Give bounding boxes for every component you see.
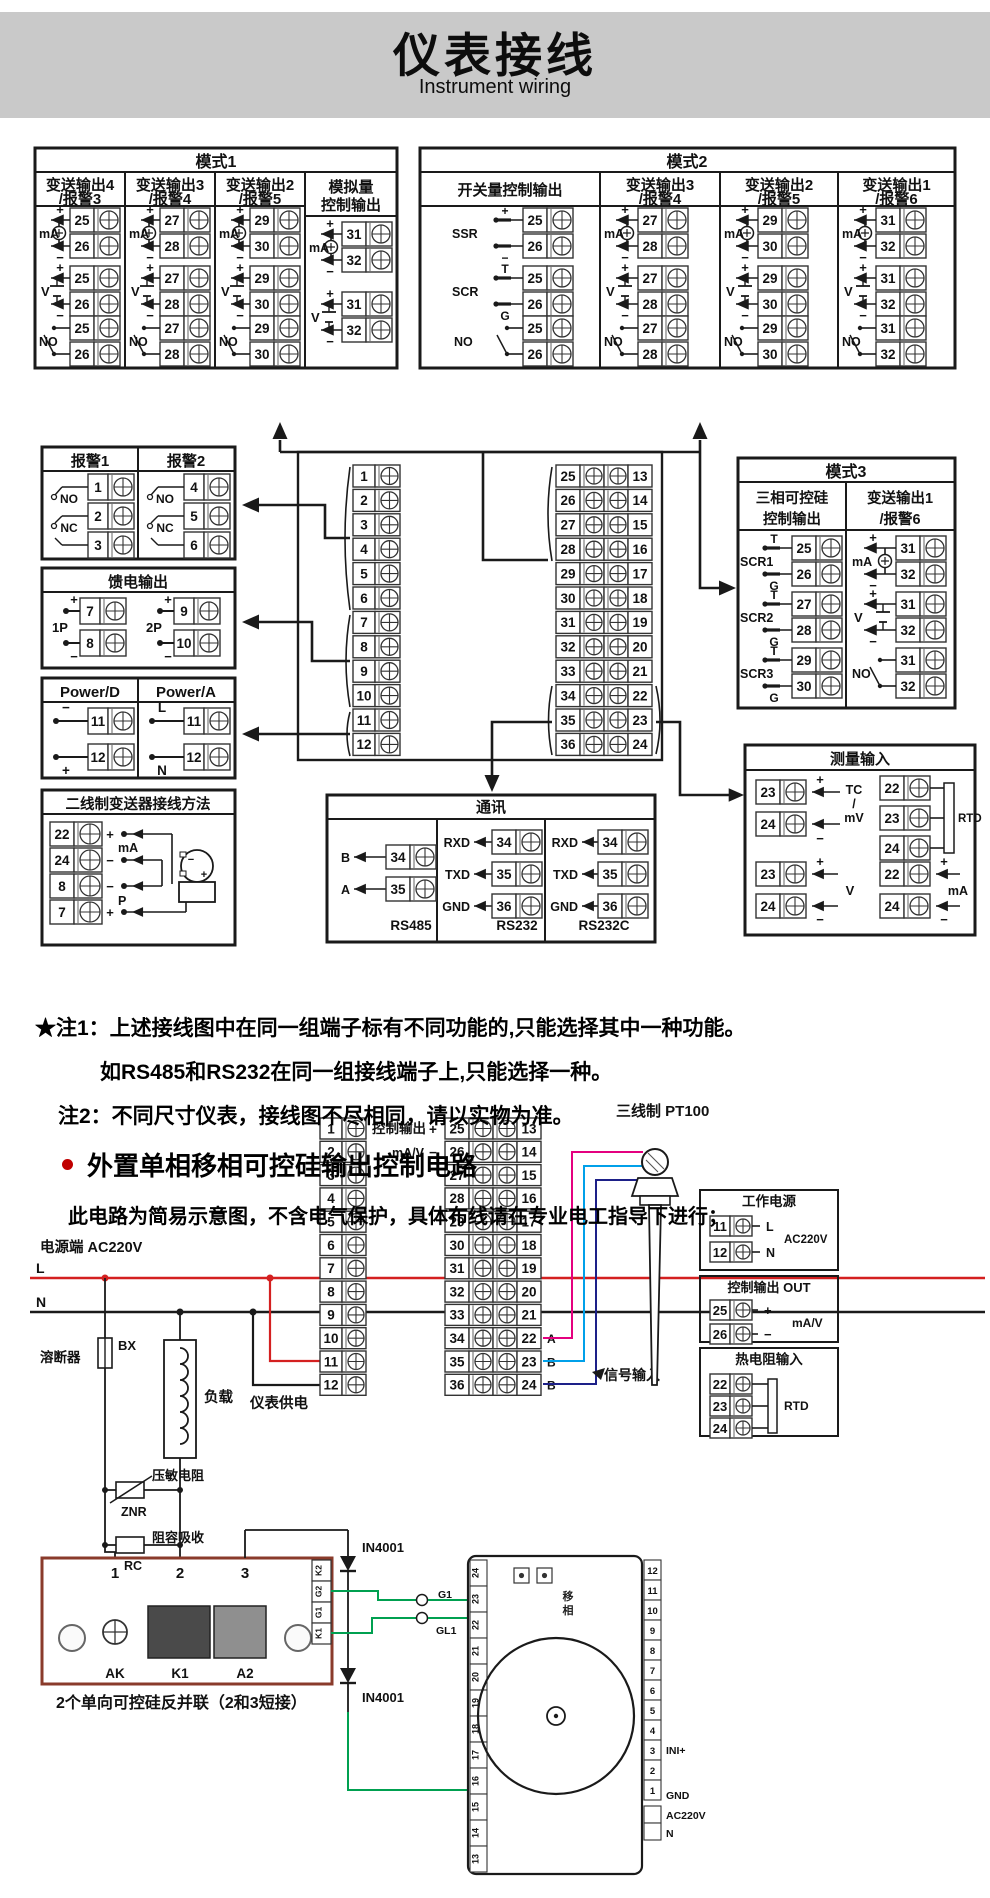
arrowhead-icon: [582, 837, 594, 848]
terminal-number: 7: [58, 905, 66, 920]
terminal-number: 33: [560, 664, 576, 679]
label: +: [56, 260, 64, 275]
label: Power/A: [156, 684, 216, 701]
arrowhead-icon: [693, 422, 708, 439]
label: /: [852, 797, 856, 811]
label: mA: [39, 227, 59, 241]
label: NO: [604, 335, 623, 349]
label: K1: [171, 1666, 189, 1681]
label: GL1: [436, 1625, 457, 1637]
page: 仪表接线 Instrument wiring 模式1变送输出4/报警32526+…: [0, 0, 990, 1898]
label: /报警3: [59, 190, 102, 208]
label: −: [621, 308, 629, 323]
terminal-number: 9: [180, 604, 188, 619]
wire: [656, 686, 660, 754]
terminal-number: 21: [521, 1308, 537, 1323]
label: K1: [314, 1628, 324, 1639]
terminal-number: 11: [357, 713, 372, 728]
tab: [180, 871, 186, 876]
label: A: [341, 883, 350, 897]
contact: [148, 524, 153, 529]
terminal-number: 18: [521, 1238, 537, 1253]
label: INI+: [666, 1745, 686, 1757]
label: P: [118, 894, 126, 908]
arrowhead-icon: [354, 884, 366, 895]
label: 16: [471, 1776, 481, 1786]
terminal-number: 6: [360, 591, 368, 606]
label: 三相可控硅: [756, 489, 829, 507]
terminal-number: 24: [54, 853, 70, 868]
label: 模式2: [667, 152, 708, 171]
label: 报警2: [167, 452, 205, 470]
label: B: [341, 851, 350, 865]
wire: [348, 1712, 470, 1790]
label: V: [854, 610, 863, 625]
terminal-number: 17: [632, 566, 647, 581]
label: RS232C: [578, 918, 629, 933]
bullet-icon: [62, 1159, 73, 1170]
label: 21: [471, 1646, 481, 1656]
label: SCR3: [740, 667, 773, 681]
terminal-number: 11: [91, 714, 106, 729]
label: T: [770, 644, 778, 658]
terminal-number: 31: [900, 597, 916, 612]
terminal-number: 26: [527, 239, 543, 254]
terminal-number: 15: [632, 518, 648, 533]
label: 20: [471, 1672, 481, 1682]
arrowhead-icon: [474, 901, 486, 912]
scr-body: [148, 1606, 210, 1658]
label: +: [741, 260, 749, 275]
label: 工作电源: [742, 1193, 796, 1209]
junction-dot: [620, 326, 624, 330]
terminal-number: 23: [884, 811, 900, 826]
junction-dot: [554, 1714, 558, 1718]
label: 1: [650, 1786, 656, 1797]
label: mA: [604, 227, 624, 241]
junction-dot: [519, 1573, 524, 1578]
terminal-number: 32: [900, 567, 915, 582]
label: N: [36, 1294, 46, 1310]
wire: [497, 335, 507, 354]
section-heading: 外置单相移相可控硅输出控制电路: [62, 1146, 477, 1183]
terminal-number: 26: [74, 239, 90, 254]
terminal-number: 14: [632, 493, 648, 508]
label: AC220V: [666, 1810, 706, 1822]
label: +: [859, 202, 867, 217]
label: −: [164, 649, 172, 664]
label: IN4001: [362, 1540, 404, 1555]
terminal-number: 30: [762, 347, 777, 362]
label: V: [311, 310, 320, 325]
terminal-number: 34: [449, 1331, 465, 1346]
terminal-number: 8: [360, 640, 368, 655]
label: SCR2: [740, 611, 773, 625]
terminal-number: 26: [560, 493, 576, 508]
feeder-lines: [242, 422, 744, 802]
terminal-number: 2: [360, 493, 368, 508]
terminal-number: 36: [602, 899, 618, 914]
terminal-number: 32: [900, 623, 915, 638]
terminal-number: 8: [58, 879, 66, 894]
power-box: Power/D1112−+Power/A1112LN: [42, 678, 235, 778]
arrowhead-icon: [729, 788, 744, 802]
note-2: 注2：不同尺寸仪表，接线图不尽相同，请以实物为准。: [58, 1100, 574, 1130]
terminal-number: 25: [527, 271, 543, 286]
label: mA: [309, 241, 329, 255]
gate-terminal: [417, 1595, 428, 1606]
label: V: [606, 284, 615, 299]
terminal-number: 7: [327, 1261, 335, 1276]
label: +: [326, 216, 334, 231]
terminal-number: 11: [324, 1354, 339, 1369]
label: V: [726, 284, 735, 299]
label: AK: [105, 1666, 125, 1681]
terminal-number: 22: [54, 827, 69, 842]
terminal-number: 12: [713, 1245, 727, 1260]
wire: [105, 1278, 115, 1558]
terminal-number: 29: [762, 213, 777, 228]
label: +: [621, 202, 629, 217]
arrowhead-icon: [936, 869, 948, 880]
wiring-diagram: 模式1变送输出4/报警32526+−mA2526+−V2526NO变送输出3/报…: [0, 0, 990, 1898]
label: 15: [471, 1802, 481, 1812]
terminal-number: 29: [254, 321, 269, 336]
label: 12: [647, 1566, 658, 1577]
terminal-number: 19: [632, 615, 647, 630]
load-box: [164, 1340, 196, 1458]
label: /报警6: [879, 510, 920, 528]
junction-dot: [762, 545, 767, 550]
label: L: [36, 1260, 45, 1276]
terminal-number: 28: [560, 542, 576, 557]
wire: [124, 902, 186, 912]
label: −: [741, 308, 749, 323]
label: 报警1: [71, 452, 109, 470]
terminal-number: 27: [164, 271, 179, 286]
label: −: [106, 879, 114, 894]
note-1b: 如RS485和RS232在同一组接线端子上,只能选择一种。: [100, 1056, 612, 1086]
terminal-number: 31: [880, 271, 896, 286]
label: GND: [550, 900, 578, 914]
terminal-number: 33: [449, 1308, 465, 1323]
label: 9: [650, 1626, 655, 1637]
arrowhead-icon: [812, 787, 824, 798]
label: /报警5: [758, 190, 801, 208]
terminal-number: 23: [713, 1399, 727, 1414]
label: 电源端 AC220V: [40, 1238, 143, 1256]
label: mA: [118, 841, 138, 855]
junction-dot: [878, 658, 882, 662]
label: −: [70, 649, 78, 664]
label: +: [106, 827, 114, 842]
label: +: [62, 763, 70, 778]
label: A2: [236, 1666, 253, 1681]
terminal-number: 24: [632, 737, 648, 752]
terminal-number: 25: [527, 321, 543, 336]
terminal-number: 35: [390, 882, 406, 897]
label: RXD: [552, 836, 578, 850]
terminal-number: 8: [327, 1284, 335, 1299]
label: T: [501, 262, 509, 276]
label: RS232: [496, 918, 537, 933]
contact: [148, 495, 153, 500]
label: NO: [724, 335, 743, 349]
terminal-number: 10: [176, 636, 191, 651]
terminal-number: 28: [642, 347, 658, 362]
label: V: [131, 284, 140, 299]
label: +: [501, 204, 508, 218]
label: K2: [314, 1565, 324, 1576]
terminal-number: 34: [390, 850, 406, 865]
terminal-number: 23: [632, 713, 648, 728]
label: +: [70, 592, 78, 607]
arrowhead-icon: [812, 819, 824, 830]
label: 2: [176, 1565, 184, 1582]
diode-icon: [340, 1668, 356, 1683]
label: 24: [471, 1568, 481, 1578]
arrowhead-icon: [936, 901, 948, 912]
terminal-number: 7: [86, 604, 94, 619]
junction-dot: [858, 326, 862, 330]
terminal-number: 31: [900, 541, 916, 556]
label: +: [146, 202, 154, 217]
label: N: [666, 1828, 674, 1840]
terminal-number: 11: [187, 714, 202, 729]
terminal-number: 9: [360, 664, 368, 679]
terminal-number: 26: [713, 1327, 727, 1342]
terminal-number: 32: [880, 239, 895, 254]
label: ZNR: [121, 1505, 147, 1519]
gate-terminal: [417, 1613, 428, 1624]
pt100-nut: [632, 1178, 678, 1196]
terminal-number: 7: [360, 615, 368, 630]
terminal-number: 32: [880, 297, 895, 312]
label: 溶断器: [40, 1349, 81, 1365]
label: −: [816, 831, 824, 846]
junction-dot: [762, 657, 767, 662]
terminal-number: 30: [254, 297, 269, 312]
wire: [331, 1591, 416, 1600]
wire: [549, 686, 553, 755]
terminal-number: 27: [560, 518, 575, 533]
terminal-number: 26: [527, 347, 543, 362]
terminal-number: 34: [602, 835, 618, 850]
label: B: [547, 1355, 556, 1369]
terminal-number: 13: [632, 469, 648, 484]
label: 23: [471, 1594, 481, 1604]
label: 10: [647, 1606, 658, 1617]
terminal-number: 3: [360, 518, 368, 533]
label: +: [816, 772, 824, 787]
label: B: [547, 1379, 556, 1393]
mode3-box: 模式3三相可控硅控制输出变送输出1/报警62526TGSCR13132+−mA2…: [738, 458, 955, 708]
label: AC220V: [784, 1234, 828, 1246]
terminal-number: 23: [521, 1354, 537, 1369]
label: mA: [129, 227, 149, 241]
label: mA/V: [792, 1316, 823, 1330]
terminal-number: 12: [323, 1378, 338, 1393]
label: RTD: [784, 1399, 809, 1413]
terminal-number: 31: [346, 297, 362, 312]
terminal-number: 25: [74, 271, 90, 286]
terminal-number: 24: [760, 817, 776, 832]
terminal-number: 23: [760, 867, 776, 882]
twowire-box: 二线制变送器接线方法22+24−8−7+mAP−+: [42, 790, 235, 945]
wire: [492, 722, 552, 776]
terminal-number: 5: [360, 566, 368, 581]
terminal-number: 36: [449, 1378, 465, 1393]
junction-dot: [542, 1573, 547, 1578]
terminal-number: 27: [164, 213, 179, 228]
label: +: [201, 869, 207, 881]
terminal-number: 24: [760, 899, 776, 914]
junction-dot: [493, 301, 498, 306]
label: −: [764, 1327, 772, 1342]
label: NO: [454, 335, 473, 349]
label: 二线制变送器接线方法: [66, 795, 211, 813]
label: −: [326, 334, 334, 349]
terminal-number: 30: [796, 679, 811, 694]
label: 阻容吸收: [152, 1530, 205, 1545]
label: TC: [846, 783, 863, 797]
label: 7: [650, 1666, 655, 1677]
label: +: [621, 260, 629, 275]
wire: [55, 538, 62, 545]
terminal-number: 27: [642, 213, 657, 228]
arrowhead-icon: [812, 901, 824, 912]
measure-input-box: 测量输入2324+−TC/mV222324RTD2324+−V2224+−mA: [745, 745, 982, 935]
wire: [483, 452, 548, 560]
label: NO: [39, 335, 58, 349]
terminal-number: 12: [90, 750, 105, 765]
label: 2个单向可控硅反并联（2和3短接）: [56, 1693, 307, 1712]
terminal-number: 24: [713, 1421, 728, 1436]
label: NO: [852, 667, 871, 681]
terminal-number: 22: [632, 688, 647, 703]
arrowhead-icon: [474, 869, 486, 880]
terminal-number: 31: [449, 1261, 465, 1276]
label: 3: [650, 1746, 655, 1757]
label: 变送输出1: [867, 489, 933, 507]
terminal-number: 32: [346, 323, 361, 338]
terminal-number: 29: [796, 653, 811, 668]
junction-dot: [762, 571, 767, 576]
label: SCR: [452, 285, 478, 299]
terminal-number: 6: [190, 538, 198, 553]
label: 22: [471, 1620, 481, 1630]
terminal-number: 32: [449, 1284, 464, 1299]
label: RXD: [444, 836, 470, 850]
terminal-number: 29: [560, 566, 575, 581]
wire: [543, 1166, 644, 1361]
junction-dot: [493, 275, 498, 280]
rtd-resistor-icon: [768, 1379, 777, 1433]
section-heading-text: 外置单相移相可控硅输出控制电路: [87, 1146, 477, 1183]
label: TXD: [553, 868, 578, 882]
terminal-number: 10: [323, 1331, 338, 1346]
label: 通讯: [476, 799, 506, 816]
terminal-number: 36: [560, 737, 576, 752]
label: /报警5: [239, 190, 282, 208]
label: −: [816, 912, 824, 927]
tab: [180, 852, 186, 857]
terminal-number: 22: [884, 781, 899, 796]
terminal-number: 19: [521, 1261, 536, 1276]
terminal-number: 27: [642, 321, 657, 336]
label: 开关量控制输出: [457, 181, 562, 199]
arrowhead-icon: [354, 852, 366, 863]
wire: [258, 505, 350, 538]
label: 热电阻输入: [735, 1351, 803, 1367]
terminal-number: 31: [900, 653, 916, 668]
section-note: 此电路为简易示意图，不含电气保护，具体布线请在专业电工指导下进行；: [68, 1200, 728, 1229]
junction-dot: [740, 326, 744, 330]
terminal-number: 27: [796, 597, 811, 612]
label: −: [940, 912, 948, 927]
label: +: [764, 1303, 772, 1318]
label: BX: [118, 1338, 136, 1353]
label: RC: [124, 1559, 142, 1573]
terminal-number: 30: [762, 239, 777, 254]
arrowhead-icon: [719, 581, 736, 596]
terminal-number: 27: [164, 321, 179, 336]
label: Power/D: [60, 684, 120, 701]
label: 17: [471, 1750, 481, 1760]
terminal-number: 26: [74, 347, 90, 362]
label: 14: [471, 1828, 481, 1838]
arrowhead-icon: [273, 422, 288, 439]
wire: [258, 622, 350, 661]
terminal-number: 31: [880, 321, 896, 336]
terminal-number: 21: [632, 664, 648, 679]
terminal-number: 30: [449, 1238, 464, 1253]
terminal-number: 4: [190, 480, 198, 495]
terminal-number: 25: [713, 1303, 727, 1318]
label: 控制输出: [763, 510, 821, 528]
label: GND: [442, 900, 470, 914]
terminal-number: 28: [164, 347, 180, 362]
terminal-number: 25: [74, 321, 90, 336]
label: N: [157, 763, 167, 778]
junction-dot: [493, 217, 498, 222]
label: V: [41, 284, 50, 299]
label: 6: [650, 1686, 655, 1697]
junction-dot: [142, 326, 146, 330]
terminal-number: 1: [94, 480, 102, 495]
terminal-number: 22: [884, 867, 899, 882]
label: RTD: [958, 813, 982, 825]
label: 8: [650, 1646, 655, 1657]
terminal-number: 25: [796, 541, 812, 556]
label: 负载: [204, 1388, 233, 1406]
feed-box: 馈电输出1P78+−2P910+−: [42, 568, 235, 668]
label: G: [769, 691, 778, 705]
label: TXD: [445, 868, 470, 882]
junction-dot: [505, 326, 509, 330]
terminal-number: 28: [796, 623, 812, 638]
terminal-number: 27: [642, 271, 657, 286]
terminal-number: 29: [762, 321, 777, 336]
arrowhead-icon: [474, 837, 486, 848]
label: NC: [60, 521, 78, 535]
terminal-number: 32: [346, 253, 361, 268]
terminal-number: 29: [762, 271, 777, 286]
label: RS485: [390, 918, 432, 933]
terminal-number: 28: [164, 239, 180, 254]
label: −: [106, 853, 114, 868]
label: 控制输出 OUT: [727, 1280, 810, 1295]
